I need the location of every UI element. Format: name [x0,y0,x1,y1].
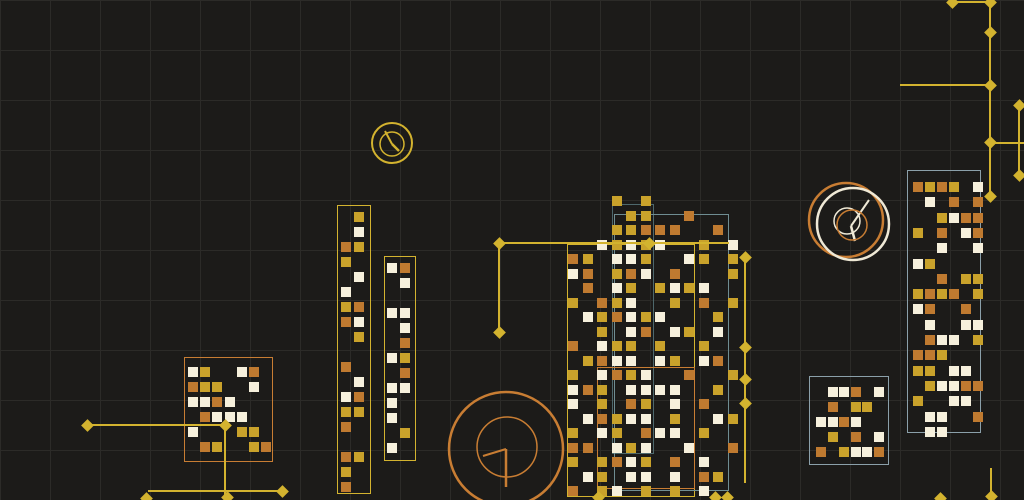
generative-art-canvas [0,0,1024,500]
node-layer [0,0,1024,500]
node-marker [984,79,997,92]
node-marker [946,0,959,8]
node-marker [276,485,289,498]
node-marker [1013,169,1024,182]
node-marker [140,492,153,500]
node-marker [984,136,997,149]
node-marker [221,491,234,500]
node-marker [984,26,997,39]
node-marker [739,397,752,410]
node-marker [709,491,722,500]
node-marker [1013,99,1024,112]
node-marker [81,419,94,432]
node-marker [739,341,752,354]
node-marker [739,373,752,386]
node-marker [984,0,997,8]
node-marker [934,492,947,500]
node-marker [219,419,232,432]
node-marker [493,237,506,250]
node-marker [643,237,656,250]
node-marker [985,490,998,500]
node-marker [739,251,752,264]
node-marker [493,326,506,339]
node-marker [984,190,997,203]
node-marker [592,491,605,500]
node-marker [721,491,734,500]
